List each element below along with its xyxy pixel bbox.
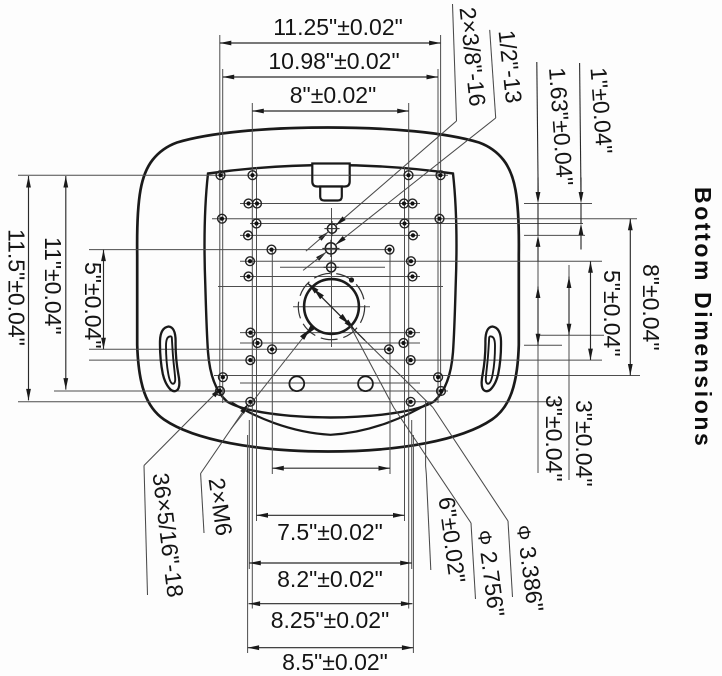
svg-text:7.5"±0.02": 7.5"±0.02" (277, 519, 383, 545)
svg-text:3"±0.04": 3"±0.04" (571, 400, 597, 487)
svg-text:8.2"±0.02": 8.2"±0.02" (277, 566, 383, 592)
svg-text:5"±0.04": 5"±0.04" (80, 262, 106, 349)
svg-text:8.25"±0.02": 8.25"±0.02" (271, 607, 389, 633)
svg-text:Bottom Dimensions: Bottom Dimensions (690, 187, 716, 448)
svg-text:8.5"±0.02": 8.5"±0.02" (282, 649, 388, 675)
svg-text:11.5"±0.04": 11.5"±0.04" (3, 229, 29, 346)
svg-text:8"±0.02": 8"±0.02" (290, 82, 377, 108)
svg-text:8"±0.04": 8"±0.04" (638, 264, 664, 351)
svg-text:11.25"±0.02": 11.25"±0.02" (273, 14, 403, 40)
svg-text:10.98"±0.02": 10.98"±0.02" (268, 48, 399, 74)
svg-text:3"±0.04": 3"±0.04" (541, 395, 567, 482)
svg-text:11"±0.04": 11"±0.04" (40, 237, 66, 335)
svg-text:5"±0.04": 5"±0.04" (599, 270, 625, 357)
